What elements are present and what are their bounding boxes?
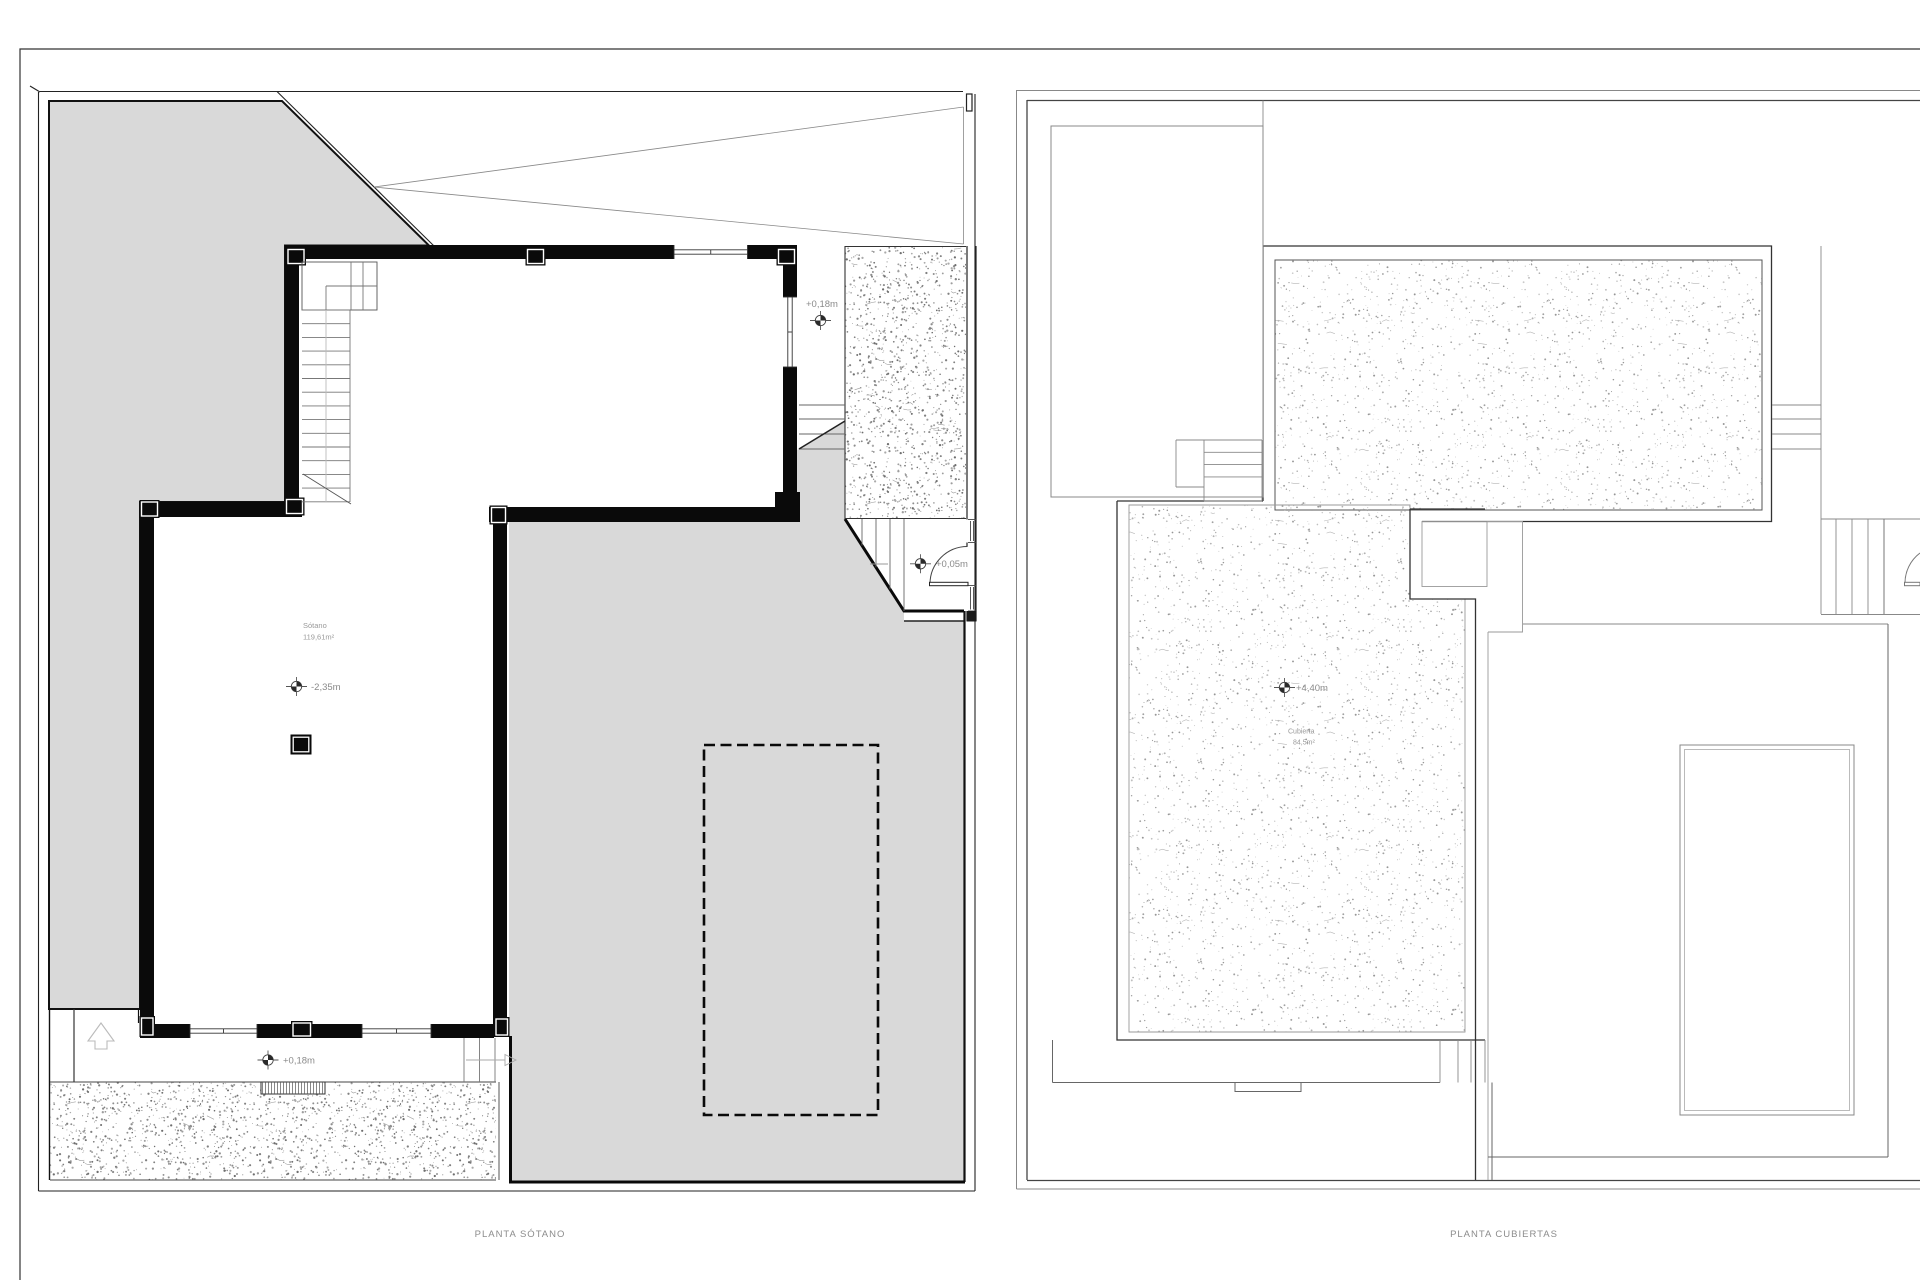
svg-text:-2,35m: -2,35m — [311, 682, 341, 693]
svg-text:84,5m²: 84,5m² — [1293, 740, 1315, 747]
svg-text:119,61m²: 119,61m² — [303, 633, 335, 642]
svg-text:+4,40m: +4,40m — [1296, 683, 1328, 694]
svg-text:+0,18m: +0,18m — [806, 299, 838, 310]
svg-text:+0,18m: +0,18m — [283, 1056, 315, 1067]
svg-text:Cubierta: Cubierta — [1288, 729, 1315, 736]
svg-text:Sótano: Sótano — [303, 621, 327, 630]
svg-text:PLANTA SÓTANO: PLANTA SÓTANO — [475, 1229, 566, 1240]
svg-text:+0,05m: +0,05m — [936, 559, 968, 570]
svg-text:PLANTA CUBIERTAS: PLANTA CUBIERTAS — [1450, 1229, 1558, 1240]
